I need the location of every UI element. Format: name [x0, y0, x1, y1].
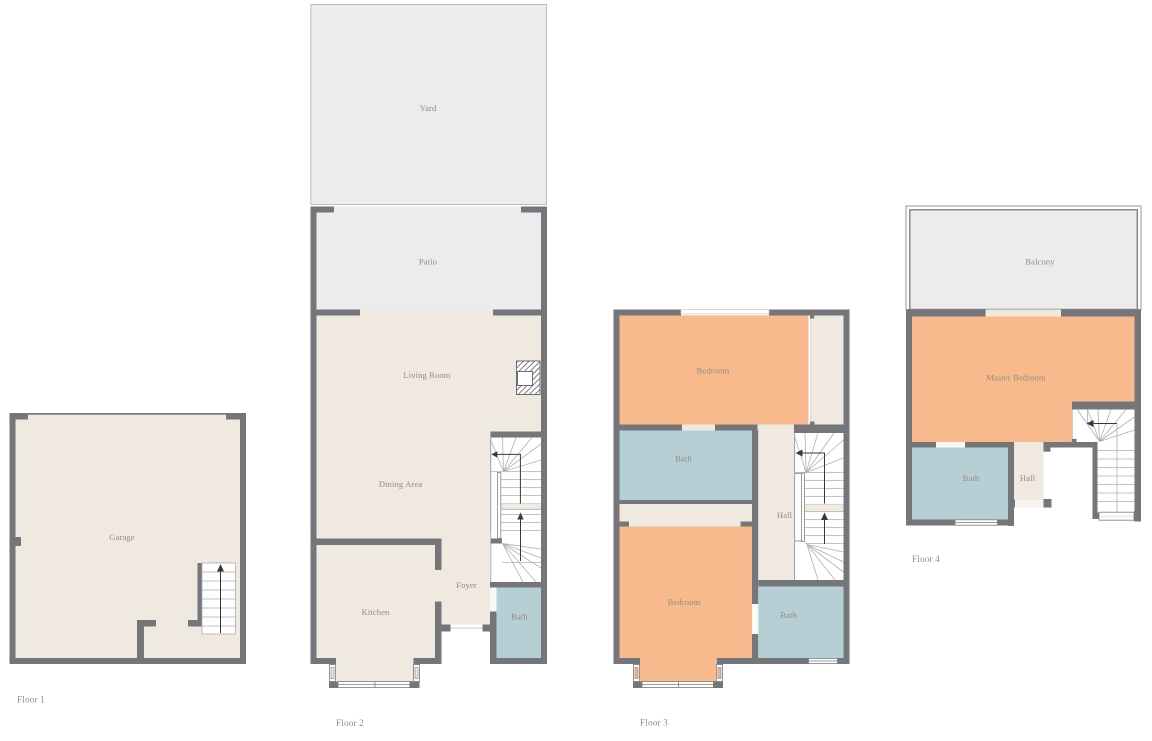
svg-text:Floor 2: Floor 2 [336, 718, 364, 728]
svg-text:Kitchen: Kitchen [362, 607, 391, 617]
svg-text:Bath: Bath [780, 610, 797, 620]
svg-text:Foyer: Foyer [456, 580, 477, 590]
svg-text:Yard: Yard [420, 103, 437, 113]
svg-text:Bath: Bath [511, 612, 528, 622]
svg-text:Master Bedroom: Master Bedroom [986, 373, 1046, 383]
svg-text:Floor 3: Floor 3 [640, 718, 668, 728]
svg-text:Garage: Garage [109, 532, 134, 542]
svg-text:Living Room: Living Room [403, 370, 450, 380]
svg-text:Bath: Bath [963, 473, 980, 483]
svg-text:Dining Area: Dining Area [379, 479, 422, 489]
svg-text:Bedroom: Bedroom [697, 366, 730, 376]
svg-text:Bedroom: Bedroom [668, 597, 701, 607]
svg-text:Hall: Hall [777, 510, 793, 520]
svg-text:Hall: Hall [1020, 473, 1036, 483]
svg-text:Floor 4: Floor 4 [912, 554, 940, 564]
svg-text:Floor 1: Floor 1 [17, 695, 45, 705]
svg-text:Balcony: Balcony [1025, 257, 1055, 267]
svg-text:Bath: Bath [675, 454, 692, 464]
svg-text:Patio: Patio [419, 257, 437, 267]
